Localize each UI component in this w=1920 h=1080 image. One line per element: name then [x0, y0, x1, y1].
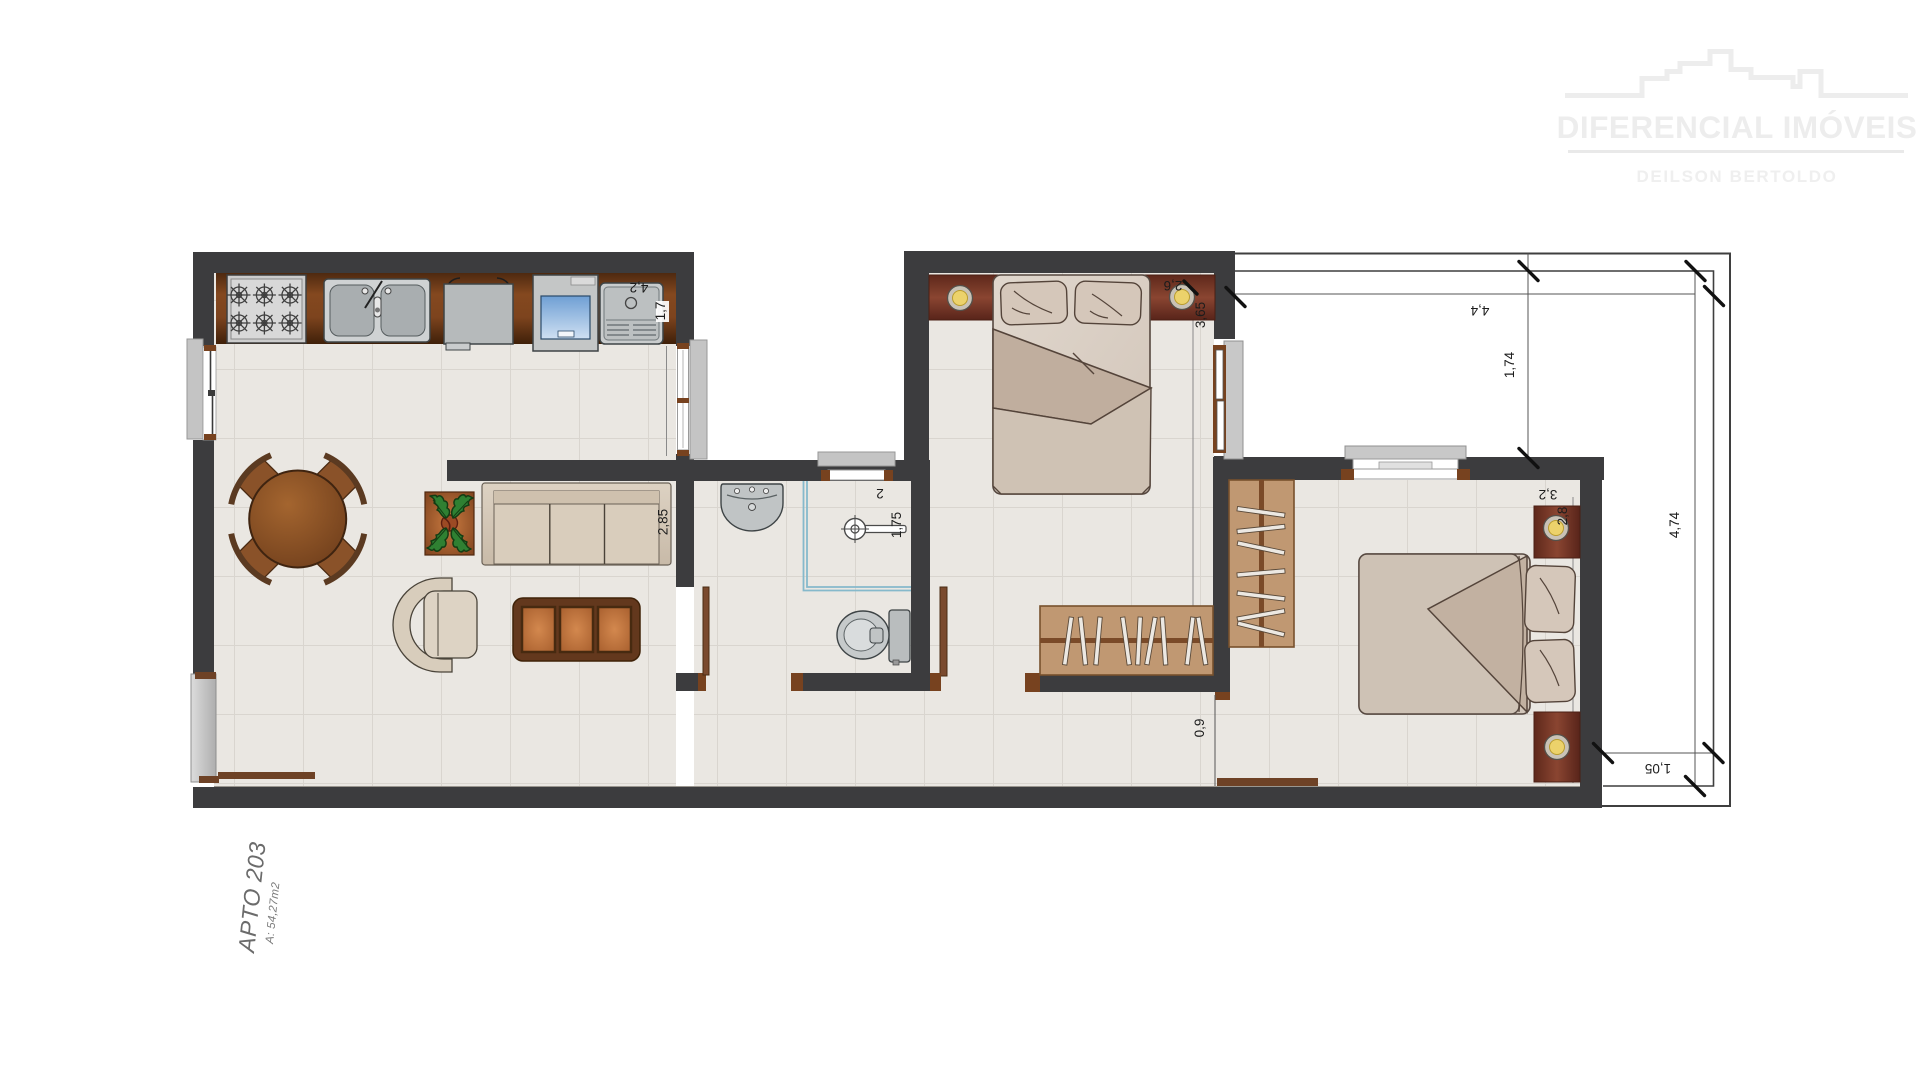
svg-text:1,05: 1,05 [1645, 761, 1671, 776]
svg-text:4,74: 4,74 [1667, 511, 1682, 538]
svg-text:3,2: 3,2 [1539, 487, 1558, 502]
svg-text:1,74: 1,74 [1502, 351, 1517, 378]
svg-text:3,65: 3,65 [1193, 302, 1208, 328]
svg-text:0,9: 0,9 [1192, 719, 1207, 738]
svg-text:2,8: 2,8 [1555, 507, 1570, 526]
svg-text:DEILSON BERTOLDO: DEILSON BERTOLDO [1637, 167, 1838, 186]
svg-text:2: 2 [876, 486, 884, 501]
svg-text:2,85: 2,85 [656, 509, 671, 535]
svg-text:2,6: 2,6 [1164, 278, 1183, 293]
svg-text:1,75: 1,75 [889, 512, 904, 538]
svg-text:1,7: 1,7 [653, 302, 668, 321]
svg-text:4,2: 4,2 [630, 280, 649, 295]
svg-text:4,4: 4,4 [1470, 303, 1489, 318]
svg-text:DIFERENCIAL IMÓVEIS: DIFERENCIAL IMÓVEIS [1557, 109, 1918, 145]
